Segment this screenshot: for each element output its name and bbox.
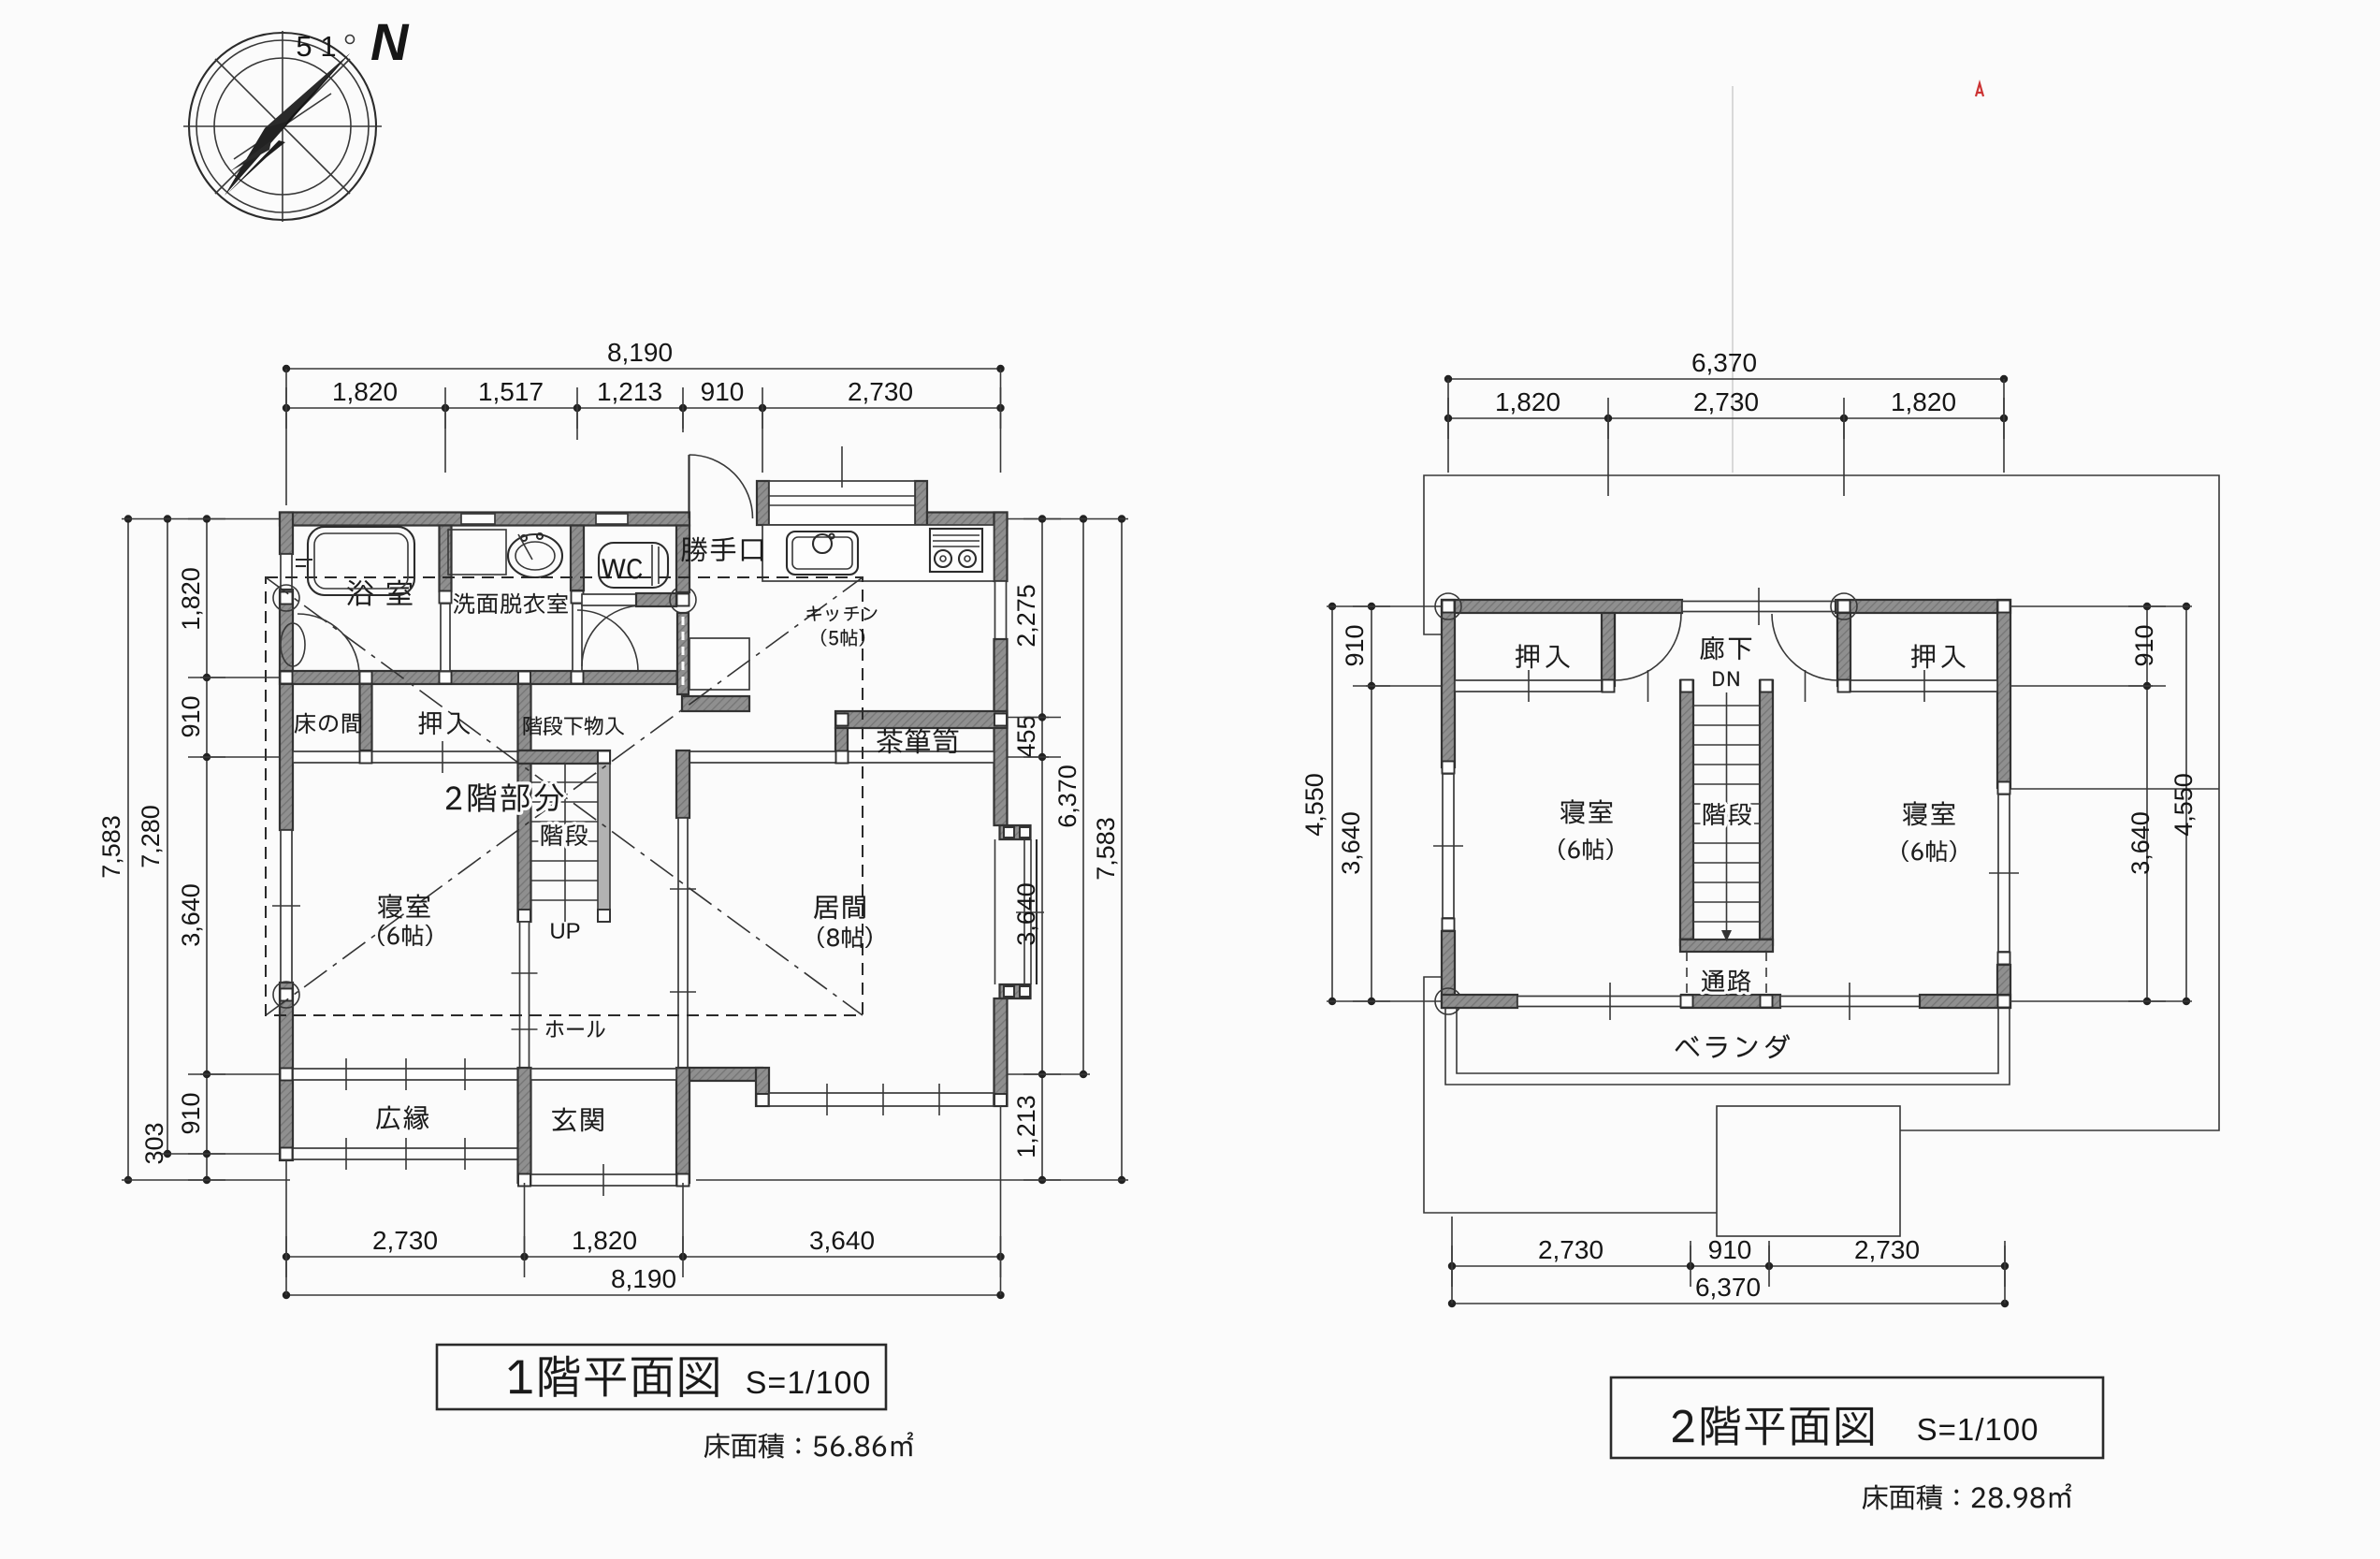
svg-text:8,190: 8,190 [611,1264,676,1293]
svg-text:1,820: 1,820 [572,1226,637,1255]
svg-text:S=1/100: S=1/100 [1917,1412,2039,1447]
svg-text:3,640: 3,640 [1337,811,1365,875]
svg-text:3,640: 3,640 [177,883,205,947]
svg-text:S=1/100: S=1/100 [746,1365,872,1401]
svg-text:6,370: 6,370 [1691,348,1757,377]
svg-text:910: 910 [2130,624,2158,666]
svg-text:910: 910 [1341,624,1369,666]
svg-text:6,370: 6,370 [1053,765,1081,828]
svg-text:3,640: 3,640 [1012,882,1040,946]
svg-text:910: 910 [1708,1235,1752,1264]
svg-text:2,730: 2,730 [1693,387,1759,416]
svg-text:5: 5 [296,30,312,63]
svg-text:1,820: 1,820 [177,567,205,631]
svg-text:910: 910 [701,377,745,406]
svg-text:2,275: 2,275 [1012,584,1040,648]
svg-text:1,213: 1,213 [1012,1095,1040,1158]
svg-text:4,550: 4,550 [1300,773,1328,837]
svg-text:910: 910 [177,1092,205,1134]
svg-text:N: N [370,12,410,71]
svg-text:6,370: 6,370 [1695,1273,1761,1302]
svg-text:7,280: 7,280 [137,805,165,868]
svg-text:3,640: 3,640 [2126,811,2155,875]
svg-text:8,190: 8,190 [607,338,673,367]
svg-text:1,820: 1,820 [332,377,398,406]
svg-text:455: 455 [1012,715,1040,757]
svg-text:2,730: 2,730 [848,377,913,406]
svg-text:4,550: 4,550 [2170,773,2198,837]
svg-text:303: 303 [140,1122,168,1164]
svg-text:7,583: 7,583 [97,815,125,879]
svg-text:1,213: 1,213 [597,377,662,406]
svg-text:1: 1 [320,30,336,63]
svg-text:1,820: 1,820 [1495,387,1560,416]
svg-text:1,820: 1,820 [1891,387,1956,416]
svg-text:2,730: 2,730 [1854,1235,1920,1264]
svg-text:2,730: 2,730 [1538,1235,1604,1264]
svg-text:910: 910 [177,695,205,737]
svg-text:7,583: 7,583 [1092,817,1120,881]
svg-text:2,730: 2,730 [372,1226,438,1255]
svg-text:3,640: 3,640 [809,1226,875,1255]
svg-text:1,517: 1,517 [478,377,544,406]
svg-text:UP: UP [549,919,580,944]
